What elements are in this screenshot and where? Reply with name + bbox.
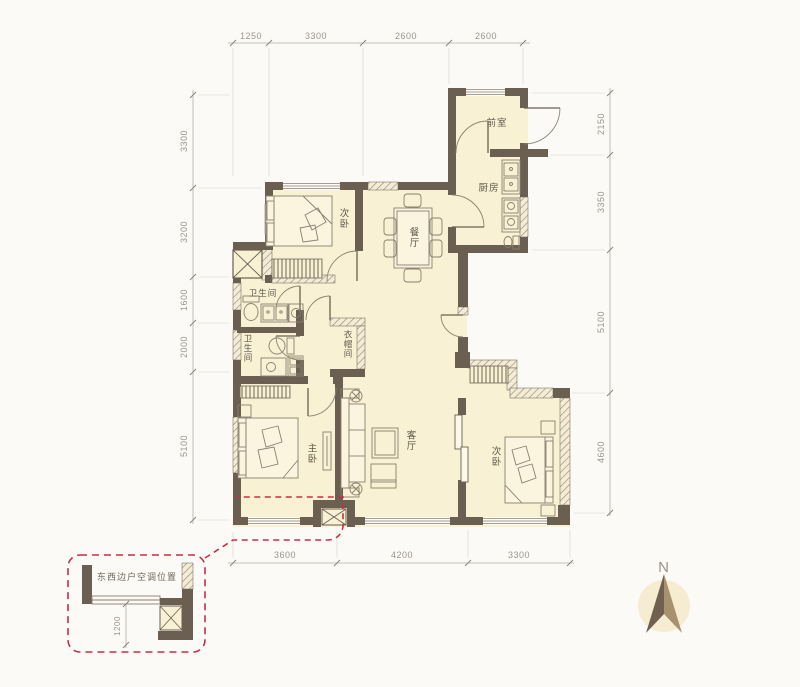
window-living-south bbox=[365, 517, 450, 525]
room-label-master: 主卧 bbox=[306, 442, 318, 464]
dim-top-2: 3300 bbox=[305, 31, 327, 41]
dim-right-2: 3350 bbox=[596, 191, 606, 213]
dim-right-4: 4600 bbox=[596, 441, 606, 463]
window-entry-top bbox=[466, 88, 505, 96]
dim-left-5: 5100 bbox=[179, 435, 189, 457]
dim-right-1: 2150 bbox=[596, 113, 606, 135]
dim-top-4: 2600 bbox=[475, 31, 497, 41]
bed-bedroom-top bbox=[266, 196, 332, 246]
window-bedroom-right-south bbox=[483, 517, 547, 525]
floor-plan-canvas: 前室 厨房 次卧 餐厅 卫生间 卫生间 衣帽间 客厅 主卧 次卧 1250 33… bbox=[0, 0, 800, 687]
dim-bottom-3: 3300 bbox=[508, 550, 530, 560]
radiator-master bbox=[240, 386, 290, 398]
room-label-entry: 前室 bbox=[486, 117, 507, 129]
compass: N bbox=[638, 559, 690, 633]
shaft bbox=[233, 250, 262, 278]
room-label-bedroom-right: 次卧 bbox=[490, 445, 502, 467]
window-bedroom-top bbox=[283, 182, 340, 190]
dim-right-3: 5100 bbox=[596, 311, 606, 333]
floor-plan-page: 前室 厨房 次卧 餐厅 卫生间 卫生间 衣帽间 客厅 主卧 次卧 1250 33… bbox=[0, 0, 800, 687]
dim-left-1: 3300 bbox=[179, 130, 189, 152]
room-label-dining: 餐厅 bbox=[408, 226, 420, 248]
room-label-kitchen: 厨房 bbox=[478, 182, 499, 194]
dim-top-1: 1250 bbox=[240, 31, 262, 41]
radiator-bedroom-top bbox=[272, 259, 322, 278]
dim-left-4: 2000 bbox=[179, 336, 189, 358]
ac-detail-drawing: 东西边户空调位置 1200 bbox=[82, 563, 193, 648]
room-label-cloakroom: 衣帽间 bbox=[343, 329, 353, 358]
radiator-bedroom-right bbox=[470, 366, 508, 383]
room-label-bedroom-top: 次卧 bbox=[338, 207, 350, 229]
dim-bottom-1: 3600 bbox=[274, 550, 296, 560]
ac-niche bbox=[313, 500, 355, 527]
dim-top-3: 2600 bbox=[395, 31, 417, 41]
room-label-bathroom-upper: 卫生间 bbox=[249, 288, 278, 298]
compass-north-label: N bbox=[658, 559, 670, 576]
room-label-living: 客厅 bbox=[405, 429, 417, 451]
ac-note-text: 东西边户空调位置 bbox=[97, 571, 177, 582]
dim-bottom-2: 4200 bbox=[391, 550, 413, 560]
entry-door bbox=[524, 108, 560, 144]
dim-left-2: 3200 bbox=[179, 221, 189, 243]
dimension-bottom: 3600 4200 3300 bbox=[228, 530, 574, 566]
room-label-bathroom-lower: 卫生间 bbox=[243, 334, 253, 363]
window-master-south bbox=[248, 517, 300, 525]
ac-depth-dim: 1200 bbox=[113, 616, 122, 636]
dim-left-3: 1600 bbox=[179, 289, 189, 311]
